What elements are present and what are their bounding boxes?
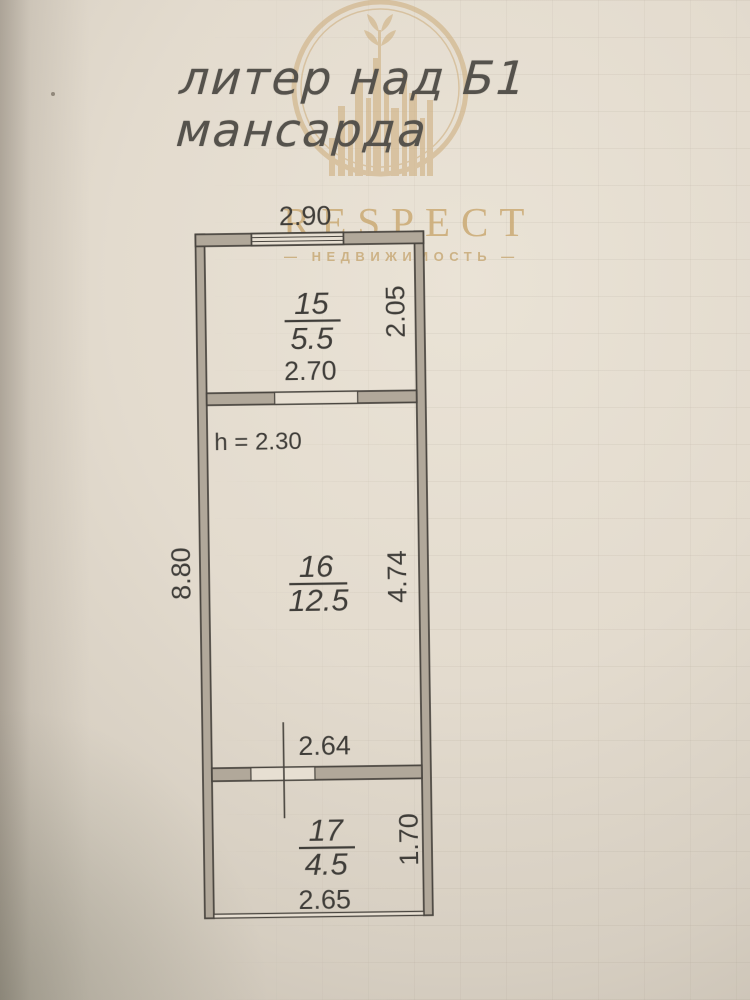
room16-area: 12.5 <box>288 582 350 618</box>
floor-plan-drawing: 2.90 8.80 15 5.5 2.70 2.05 h = 2.30 16 1… <box>145 190 455 939</box>
dim-overall-width: 2.90 <box>279 201 332 232</box>
opening-15-16 <box>275 391 358 404</box>
opening-16-17 <box>251 767 315 781</box>
dimension-extension-line <box>283 722 284 818</box>
window-top <box>251 232 343 245</box>
wall-right <box>414 231 433 915</box>
room15-area: 5.5 <box>290 321 334 357</box>
wall-left <box>195 234 214 918</box>
room15-number: 15 <box>294 286 330 321</box>
room16-ceiling-height: h = 2.30 <box>214 428 302 456</box>
room17-height: 1.70 <box>393 813 424 866</box>
title-line-1: литер над Б1 <box>178 52 529 104</box>
room15-width: 2.70 <box>284 355 337 386</box>
room17-area: 4.5 <box>304 846 348 882</box>
wall-16-17 <box>212 765 422 781</box>
room16-height: 4.74 <box>382 550 413 603</box>
room15-height: 2.05 <box>380 285 411 338</box>
dust-speck <box>51 92 55 96</box>
room17-width: 2.65 <box>298 884 351 915</box>
room16-number: 16 <box>299 549 335 584</box>
title-line-2: мансарда <box>174 104 525 156</box>
room17-number: 17 <box>308 812 345 848</box>
floor-plan: 2.90 8.80 15 5.5 2.70 2.05 h = 2.30 16 1… <box>145 190 455 939</box>
room16-bottom-width: 2.64 <box>298 730 351 761</box>
plan-title: литер над Б1 мансарда <box>174 52 529 156</box>
dim-overall-height: 8.80 <box>166 547 197 600</box>
